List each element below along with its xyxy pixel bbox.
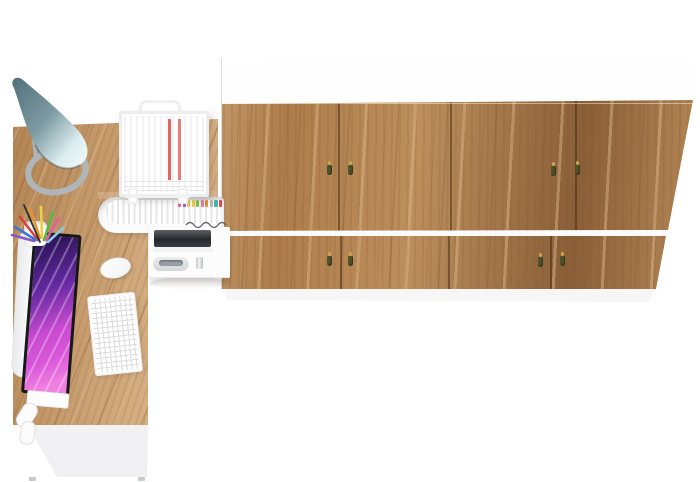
cabinet-door-seam: [450, 100, 452, 231]
monitor-stand-base: [18, 420, 37, 446]
paper-red-stripe: [178, 119, 181, 180]
door-handle-tassel: [551, 162, 556, 176]
document-wire-tray: [116, 100, 206, 200]
file-tab: [205, 200, 208, 207]
pedestal-drawer-handle: [153, 256, 189, 271]
screen-light-streaks: [24, 235, 78, 394]
paper-stack-edge: [124, 186, 204, 187]
pedestal-shadow: [150, 277, 230, 290]
paper-stack-edge: [124, 181, 204, 182]
cabinet-door-seam: [448, 236, 450, 289]
door-handle-tassel: [348, 161, 353, 175]
door-handle-tassel: [575, 161, 580, 175]
door-handle-tassel: [327, 252, 332, 266]
keyboard: [87, 292, 143, 377]
tray-basket: [119, 111, 209, 197]
all-in-one-computer: [6, 221, 81, 432]
file-tab: [192, 200, 195, 207]
pen-cup: [24, 221, 47, 246]
cabinet-door-seam: [550, 236, 552, 289]
tray-leg-bar: [124, 194, 190, 198]
door-handle-tassel: [538, 253, 543, 267]
cabinet-door-top-highlight: [222, 103, 692, 104]
cabinet-door-seam: [340, 236, 342, 289]
mobile-pedestal: [149, 227, 230, 278]
scene-caption: Top-down 3D render of a home office: L-s…: [0, 0, 1, 1]
door-handle-tassel: [348, 252, 353, 266]
pedestal-open-shelf: [154, 230, 211, 247]
pedestal-latch: [196, 257, 203, 269]
keyboard-keys: [90, 295, 140, 373]
file-tab: [210, 200, 213, 207]
paper-red-stripe: [168, 119, 171, 180]
cabinet-door-seam: [338, 100, 340, 231]
desk-foot: [29, 477, 36, 481]
file-tab: [219, 200, 222, 207]
file-tab: [201, 200, 204, 207]
door-handle-tassel: [327, 161, 332, 175]
file-tab: [214, 200, 217, 207]
file-tab: [196, 200, 199, 207]
workspace-render-scene: Top-down 3D render of a home office: L-s…: [0, 0, 700, 482]
door-handle-tassel: [560, 252, 565, 266]
desk-foot: [138, 477, 145, 481]
pedestal-shelf-lip: [153, 247, 213, 252]
